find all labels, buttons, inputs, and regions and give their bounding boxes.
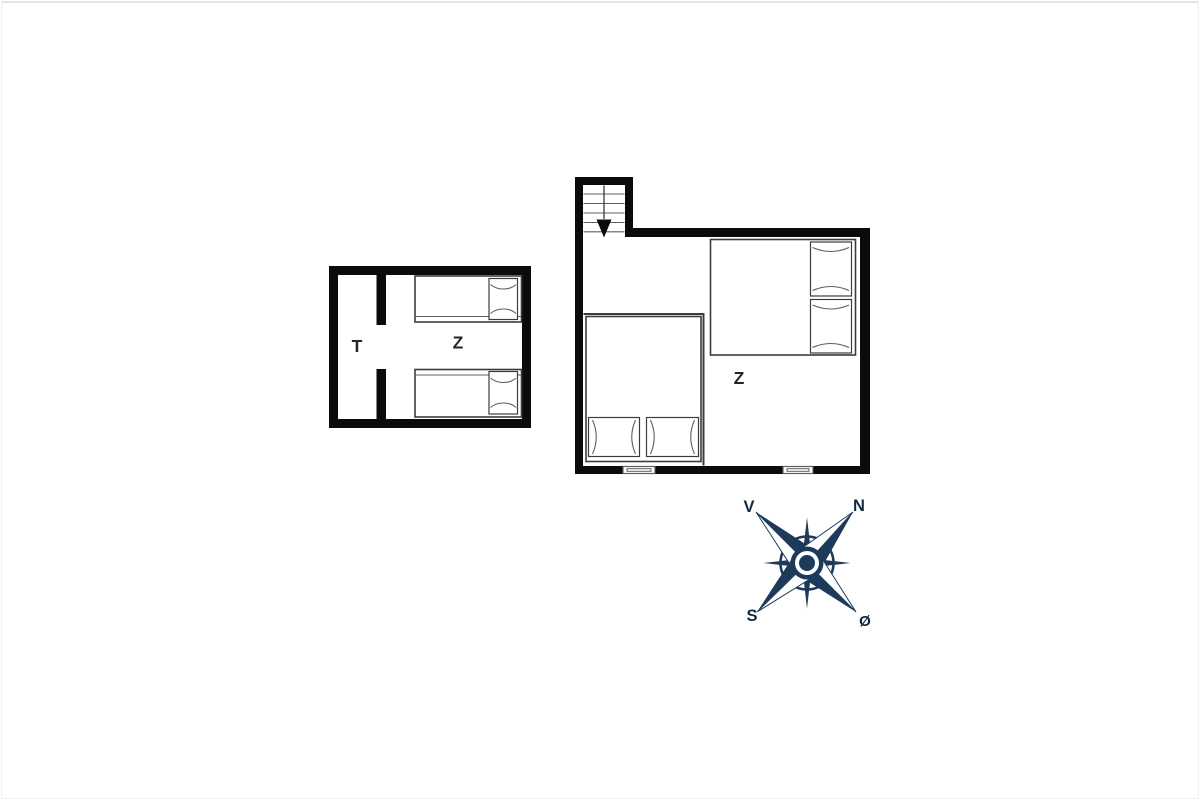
floor-plan-page: T Z — [0, 0, 1200, 800]
window-1 — [623, 467, 655, 474]
compass-center — [791, 547, 824, 580]
window-2 — [783, 467, 813, 474]
compass-label-east: Ø — [859, 613, 871, 630]
pillow — [489, 372, 518, 415]
window-inner — [787, 469, 809, 472]
double-bed-right — [711, 240, 856, 356]
pillow — [811, 300, 852, 354]
annex-divider-wall-lower — [377, 369, 387, 419]
main-building: Z — [575, 177, 870, 474]
compass-label-west: V — [743, 498, 754, 516]
single-bed-top — [415, 276, 522, 322]
pillow — [489, 279, 518, 320]
compass-label-south: S — [746, 607, 757, 625]
main-room-z-label: Z — [734, 368, 745, 388]
annex-building: T Z — [329, 266, 531, 428]
pillow — [811, 242, 852, 296]
stairs-down-arrow-icon — [597, 220, 612, 238]
compass-center-core — [799, 555, 815, 571]
compass-label-north: N — [853, 497, 865, 515]
annex-room-t-label: T — [352, 336, 363, 356]
compass-rose: V N S Ø — [743, 497, 871, 630]
single-bed-bottom — [415, 370, 522, 418]
stairs — [584, 186, 625, 238]
annex-room-z-label: Z — [453, 333, 464, 353]
window-inner — [627, 469, 651, 472]
floor-plan-canvas: T Z — [0, 0, 1200, 800]
double-bed-left — [586, 317, 701, 462]
annex-divider-wall-upper — [377, 275, 387, 325]
